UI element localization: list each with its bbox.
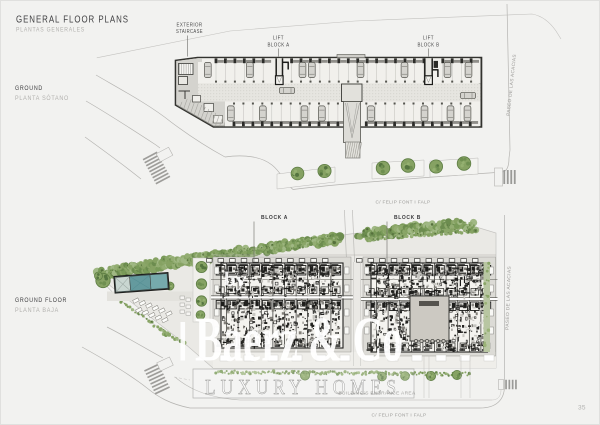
svg-text:EXTERIOR: EXTERIOR: [177, 23, 203, 29]
svg-text:STAIRCASE: STAIRCASE: [176, 29, 203, 35]
svg-text:C/ FELIP FONT I FALP: C/ FELIP FONT I FALP: [376, 200, 431, 205]
svg-text:Baerz & Co: Baerz & Co: [195, 305, 403, 375]
svg-text:PLANTA SÓTANO: PLANTA SÓTANO: [15, 93, 69, 102]
svg-text:LIFT: LIFT: [273, 35, 284, 41]
svg-text:GROUND: GROUND: [15, 85, 43, 92]
svg-text:BLOCK A: BLOCK A: [268, 43, 290, 49]
svg-text:BLOCK B: BLOCK B: [394, 215, 421, 221]
svg-text:C/ FELIP FONT I FALP: C/ FELIP FONT I FALP: [372, 413, 427, 418]
svg-text:by: by: [224, 267, 247, 291]
svg-text:GENERAL FLOOR PLANS: GENERAL FLOOR PLANS: [16, 14, 129, 25]
svg-text:35: 35: [578, 405, 586, 412]
svg-text:PLANTA BAJA: PLANTA BAJA: [15, 307, 59, 314]
svg-text:BLOCK A: BLOCK A: [261, 215, 288, 221]
svg-text:LUXURY HOMES: LUXURY HOMES: [205, 375, 401, 399]
svg-text:PLANTAS GENERALES: PLANTAS GENERALES: [16, 27, 85, 34]
svg-text:GROUND FLOOR: GROUND FLOOR: [15, 297, 67, 304]
svg-text:BLOCK B: BLOCK B: [418, 43, 440, 49]
svg-text:LIFT: LIFT: [423, 35, 434, 41]
